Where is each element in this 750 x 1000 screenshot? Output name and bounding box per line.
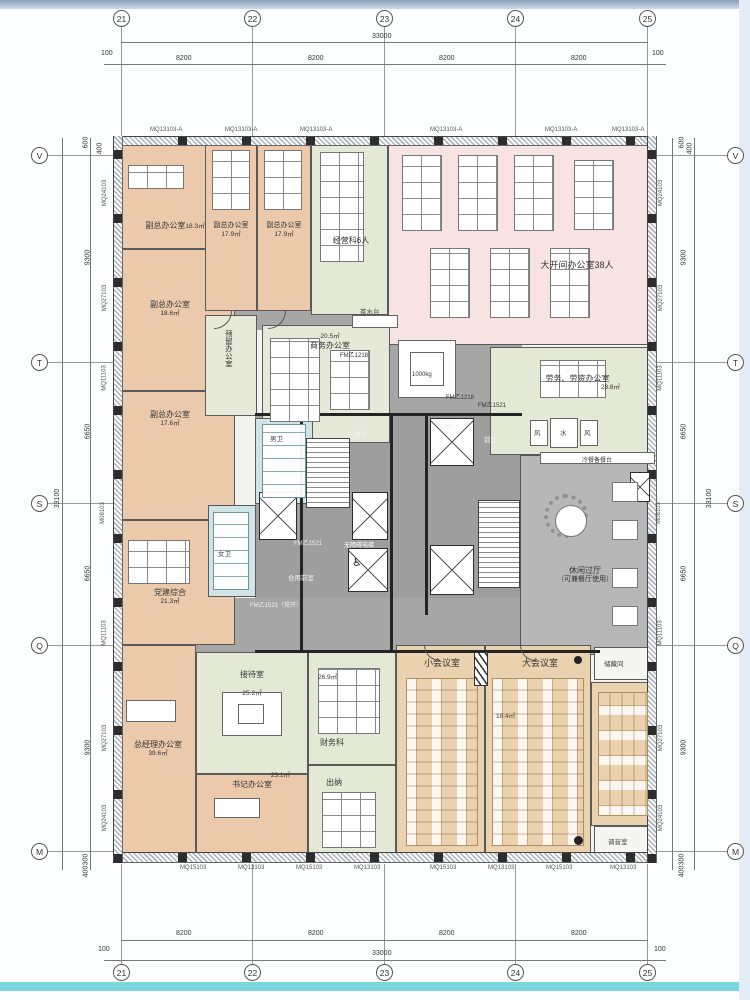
grid-bubble-22-bottom: 22 bbox=[244, 964, 261, 981]
lounge-armchair bbox=[612, 606, 638, 626]
grid-line bbox=[656, 362, 727, 363]
grid-bubble-V-left: V bbox=[31, 147, 48, 164]
dim-offset: 300 bbox=[678, 854, 685, 866]
label-small-meeting: 小会议室 bbox=[404, 658, 480, 669]
grid-line bbox=[252, 864, 253, 964]
grid-line bbox=[252, 27, 253, 137]
dim-seg: 8200 bbox=[308, 55, 324, 62]
dim-offset: 600 bbox=[678, 137, 685, 149]
furniture-workstations bbox=[514, 155, 554, 231]
label-tea-counter: 茶水台 bbox=[360, 306, 380, 316]
label-gm: 总经理办公室39.6㎡ bbox=[116, 740, 200, 758]
label-fm1521-open: FM乙1521（常开） bbox=[250, 600, 302, 609]
dim-seg: 8200 bbox=[439, 55, 455, 62]
grid-line bbox=[515, 27, 516, 137]
floor-plan-drawing: 21 22 23 24 25 33000 8200 8200 8200 8200… bbox=[0, 0, 750, 1000]
dim-seg: 9300 bbox=[84, 250, 91, 266]
grid-line bbox=[384, 27, 385, 137]
dim-seg: 8200 bbox=[571, 55, 587, 62]
dim-offset: 100 bbox=[101, 50, 113, 57]
facade-left-2: MQ27103 bbox=[102, 285, 108, 311]
facade-left-7: MQ24103 bbox=[102, 805, 108, 831]
furniture-workstations bbox=[458, 155, 498, 231]
dim-seg: 6650 bbox=[680, 424, 687, 440]
grid-bubble-23-top: 23 bbox=[376, 10, 393, 27]
grid-line bbox=[656, 645, 727, 646]
dim-line bbox=[62, 138, 63, 870]
dim-line bbox=[104, 960, 666, 961]
label-vp5: 副总办公室17.6㎡ bbox=[120, 410, 220, 428]
label-shared-vestibule: 合用前室 bbox=[288, 572, 314, 582]
grid-bubble-23-bottom: 23 bbox=[376, 964, 393, 981]
furniture-workstations bbox=[550, 248, 590, 318]
curtain-wall-bottom bbox=[114, 852, 656, 863]
dim-offset: 400 bbox=[678, 866, 685, 878]
lounge-round-table bbox=[544, 494, 588, 538]
dim-total-right: 33100 bbox=[706, 489, 713, 508]
seating-small-meeting bbox=[406, 678, 478, 846]
label-vp3: 副总办公室17.9㎡ bbox=[258, 222, 310, 240]
facade-right-4: M08103 bbox=[656, 502, 662, 524]
facade-top-1: MQ13103-A bbox=[150, 127, 182, 133]
grid-bubble-Q-right: Q bbox=[727, 637, 744, 654]
dim-line bbox=[121, 42, 648, 43]
facade-bottom-1: MQ15103 bbox=[180, 865, 206, 871]
lounge-armchair bbox=[612, 482, 638, 502]
label-vp2: 副总办公室17.9㎡ bbox=[205, 222, 257, 240]
grid-bubble-S-left: S bbox=[31, 495, 48, 512]
furniture-secretary-desk bbox=[214, 798, 260, 818]
grid-bubble-25-top: 25 bbox=[639, 10, 656, 27]
furniture-workstations bbox=[490, 248, 530, 318]
elevator-2 bbox=[352, 492, 388, 540]
core-wall bbox=[390, 415, 393, 652]
curtain-wall-top bbox=[114, 136, 656, 146]
label-water-shaft: 水 bbox=[560, 427, 567, 437]
grid-bubble-M-left: M bbox=[31, 843, 48, 860]
dim-seg: 8200 bbox=[439, 930, 455, 937]
label-party: 党建综合21.3㎡ bbox=[120, 588, 220, 606]
grid-bubble-T-right: T bbox=[727, 354, 744, 371]
grid-bubble-22-top: 22 bbox=[244, 10, 261, 27]
furniture-workstations bbox=[430, 248, 470, 318]
dim-line bbox=[90, 138, 91, 870]
label-large-meeting-area: 18.4㎡ bbox=[496, 710, 515, 720]
facade-top-4: MQ13103-A bbox=[430, 127, 462, 133]
dim-total-bottom: 33000 bbox=[372, 950, 391, 957]
label-air-shaft-1: 风 bbox=[534, 427, 541, 437]
label-wc-men: 男卫 bbox=[270, 433, 283, 443]
label-storage: 储藏间 bbox=[604, 658, 624, 668]
furniture-gm-desk bbox=[126, 700, 176, 722]
dim-offset: 100 bbox=[652, 50, 664, 57]
furniture bbox=[212, 150, 250, 210]
furniture-desk bbox=[128, 165, 184, 189]
passenger-elevator-cab-inner bbox=[410, 352, 444, 386]
dim-seg: 6650 bbox=[84, 566, 91, 582]
label-wc-women: 女卫 bbox=[218, 548, 231, 558]
facade-bottom-3: MQ15103 bbox=[296, 865, 322, 871]
tea-counter bbox=[352, 315, 398, 328]
facade-right-2: MQ27103 bbox=[658, 285, 664, 311]
facade-top-2: MQ13103-A bbox=[225, 127, 257, 133]
grid-bubble-21-bottom: 21 bbox=[113, 964, 130, 981]
dim-offset: 100 bbox=[98, 946, 110, 953]
grid-line bbox=[647, 864, 648, 964]
dim-total-top: 33000 bbox=[372, 33, 391, 40]
grid-line bbox=[656, 851, 727, 852]
dim-seg: 8200 bbox=[176, 930, 192, 937]
facade-bottom-5: MQ15103 bbox=[430, 865, 456, 871]
dim-seg: 6650 bbox=[680, 566, 687, 582]
label-large-meeting: 大会议室 bbox=[500, 658, 580, 669]
stair-2 bbox=[478, 500, 520, 588]
grid-bubble-M-right: M bbox=[727, 843, 744, 860]
facade-right-7: MQ24103 bbox=[658, 805, 664, 831]
dim-seg: 8200 bbox=[176, 55, 192, 62]
furniture bbox=[264, 150, 302, 210]
label-reserved: 预留办公室 bbox=[224, 330, 233, 368]
label-lift-capacity: 1000kg bbox=[412, 372, 432, 378]
facade-bottom-8: MQ13103 bbox=[610, 865, 636, 871]
plant bbox=[574, 836, 583, 845]
dim-line bbox=[104, 64, 666, 65]
grid-bubble-S-right: S bbox=[727, 495, 744, 512]
facade-bottom-7: MQ15103 bbox=[546, 865, 572, 871]
grid-line bbox=[656, 155, 727, 156]
dim-line bbox=[121, 940, 648, 941]
dim-seg: 6650 bbox=[84, 424, 91, 440]
dim-offset: 400 bbox=[686, 143, 693, 155]
grid-line bbox=[384, 864, 385, 964]
label-finance-area: 26.9㎡ bbox=[318, 672, 378, 682]
facade-bottom-6: MQ13103 bbox=[488, 865, 514, 871]
elevator-1 bbox=[259, 492, 297, 540]
wheelchair-icon: ♿ bbox=[352, 556, 362, 569]
label-weak-power-2: 弱电 bbox=[440, 420, 453, 430]
accessible-elevator bbox=[348, 548, 388, 592]
grid-line bbox=[48, 851, 114, 852]
dim-offset: 600 bbox=[82, 137, 89, 149]
facade-right-6: MQ27103 bbox=[658, 725, 664, 751]
facade-bottom-2: MQ13103 bbox=[238, 865, 264, 871]
label-weak-power-1: 弱电 bbox=[354, 428, 367, 438]
facade-left-4: M08103 bbox=[100, 502, 106, 524]
furniture-coffee-table bbox=[238, 704, 264, 724]
grid-line bbox=[121, 27, 122, 137]
dim-seg: 9300 bbox=[680, 740, 687, 756]
grid-line bbox=[48, 362, 114, 363]
window-bottom-strip bbox=[0, 982, 750, 991]
label-tuning: 调音室 bbox=[608, 836, 628, 846]
facade-top-5: MQ13103-A bbox=[545, 127, 577, 133]
grid-bubble-T-left: T bbox=[31, 354, 48, 371]
seating-large-meeting-wing bbox=[598, 692, 648, 816]
label-buffet-counter: 冷餐备餐台 bbox=[582, 455, 612, 464]
label-fm1218-2: FM乙1218 bbox=[446, 392, 474, 401]
facade-left-3: MQ11103 bbox=[102, 365, 108, 390]
dim-seg: 9300 bbox=[680, 250, 687, 266]
dim-seg: 8200 bbox=[571, 930, 587, 937]
dim-total-left: 33100 bbox=[54, 489, 61, 508]
dim-offset: 400 bbox=[96, 143, 103, 155]
elevator-4 bbox=[430, 545, 474, 595]
dim-offset: 300 bbox=[82, 854, 89, 866]
label-finance: 财务科 bbox=[320, 738, 380, 748]
label-air-shaft-2: 风 bbox=[584, 427, 591, 437]
grid-bubble-Q-left: Q bbox=[31, 637, 48, 654]
facade-left-5: MQ11103 bbox=[102, 620, 108, 645]
label-cashier: 出纳 bbox=[326, 778, 376, 788]
label-lounge: 休闲过厅（可兼餐厅使用） bbox=[530, 566, 640, 585]
dim-offset: 100 bbox=[654, 946, 666, 953]
furniture-meeting-table bbox=[128, 540, 190, 584]
label-labor: 劳务、劳资办公室28.8㎡ bbox=[505, 374, 650, 392]
facade-top-6: MQ13103-A bbox=[612, 127, 644, 133]
grid-line bbox=[121, 864, 122, 964]
label-accessible-lift: 无障碍电梯 bbox=[344, 540, 374, 549]
label-open-office: 大开间办公室38人 bbox=[512, 260, 642, 271]
furniture-workstations bbox=[322, 792, 376, 848]
dim-seg: 8200 bbox=[308, 930, 324, 937]
facade-left-6: MQ27103 bbox=[102, 725, 108, 751]
label-fm1521-1: FM乙1521 bbox=[478, 400, 506, 409]
dim-line bbox=[672, 138, 673, 870]
label-fm1521-2: FM乙1521 bbox=[294, 538, 322, 547]
grid-bubble-21-top: 21 bbox=[113, 10, 130, 27]
furniture-workstations bbox=[330, 350, 370, 410]
wc-men-stalls bbox=[262, 424, 306, 498]
window-top-strip bbox=[0, 0, 750, 9]
seating-large-meeting bbox=[492, 678, 584, 846]
grid-line bbox=[656, 503, 727, 504]
facade-left-1: MQ24103 bbox=[102, 180, 108, 206]
grid-bubble-24-bottom: 24 bbox=[507, 964, 524, 981]
grid-line bbox=[647, 27, 648, 137]
stair-1 bbox=[306, 438, 350, 508]
facade-right-1: MQ24103 bbox=[658, 180, 664, 206]
dim-seg: 9300 bbox=[84, 740, 91, 756]
facade-bottom-4: MQ13103 bbox=[354, 865, 380, 871]
grid-bubble-24-top: 24 bbox=[507, 10, 524, 27]
facade-right-3: MQ11103 bbox=[658, 365, 664, 390]
grid-bubble-25-bottom: 25 bbox=[639, 964, 656, 981]
label-vestibule: 前室 bbox=[484, 434, 497, 444]
label-secretary: 23.1㎡书记办公室 bbox=[200, 772, 304, 790]
facade-right-5: MQ11103 bbox=[658, 620, 664, 645]
label-vp4: 副总办公室18.6㎡ bbox=[120, 300, 220, 318]
label-reception: 接待室25.2㎡ bbox=[200, 670, 304, 698]
grid-bubble-V-right: V bbox=[727, 147, 744, 164]
dim-line bbox=[694, 138, 695, 870]
label-ops: 经营科6人 bbox=[316, 236, 386, 246]
facade-top-3: MQ13103-A bbox=[300, 127, 332, 133]
grid-line bbox=[48, 155, 114, 156]
lounge-armchair bbox=[612, 520, 638, 540]
furniture-workstations bbox=[574, 160, 614, 230]
core-wall bbox=[425, 415, 428, 615]
label-fm1218-1: FM乙1218 bbox=[340, 350, 368, 359]
grid-line bbox=[515, 864, 516, 964]
dim-offset: 400 bbox=[82, 866, 89, 878]
label-business: 20.5㎡商务办公室 bbox=[285, 333, 375, 351]
furniture-workstations bbox=[402, 155, 442, 231]
